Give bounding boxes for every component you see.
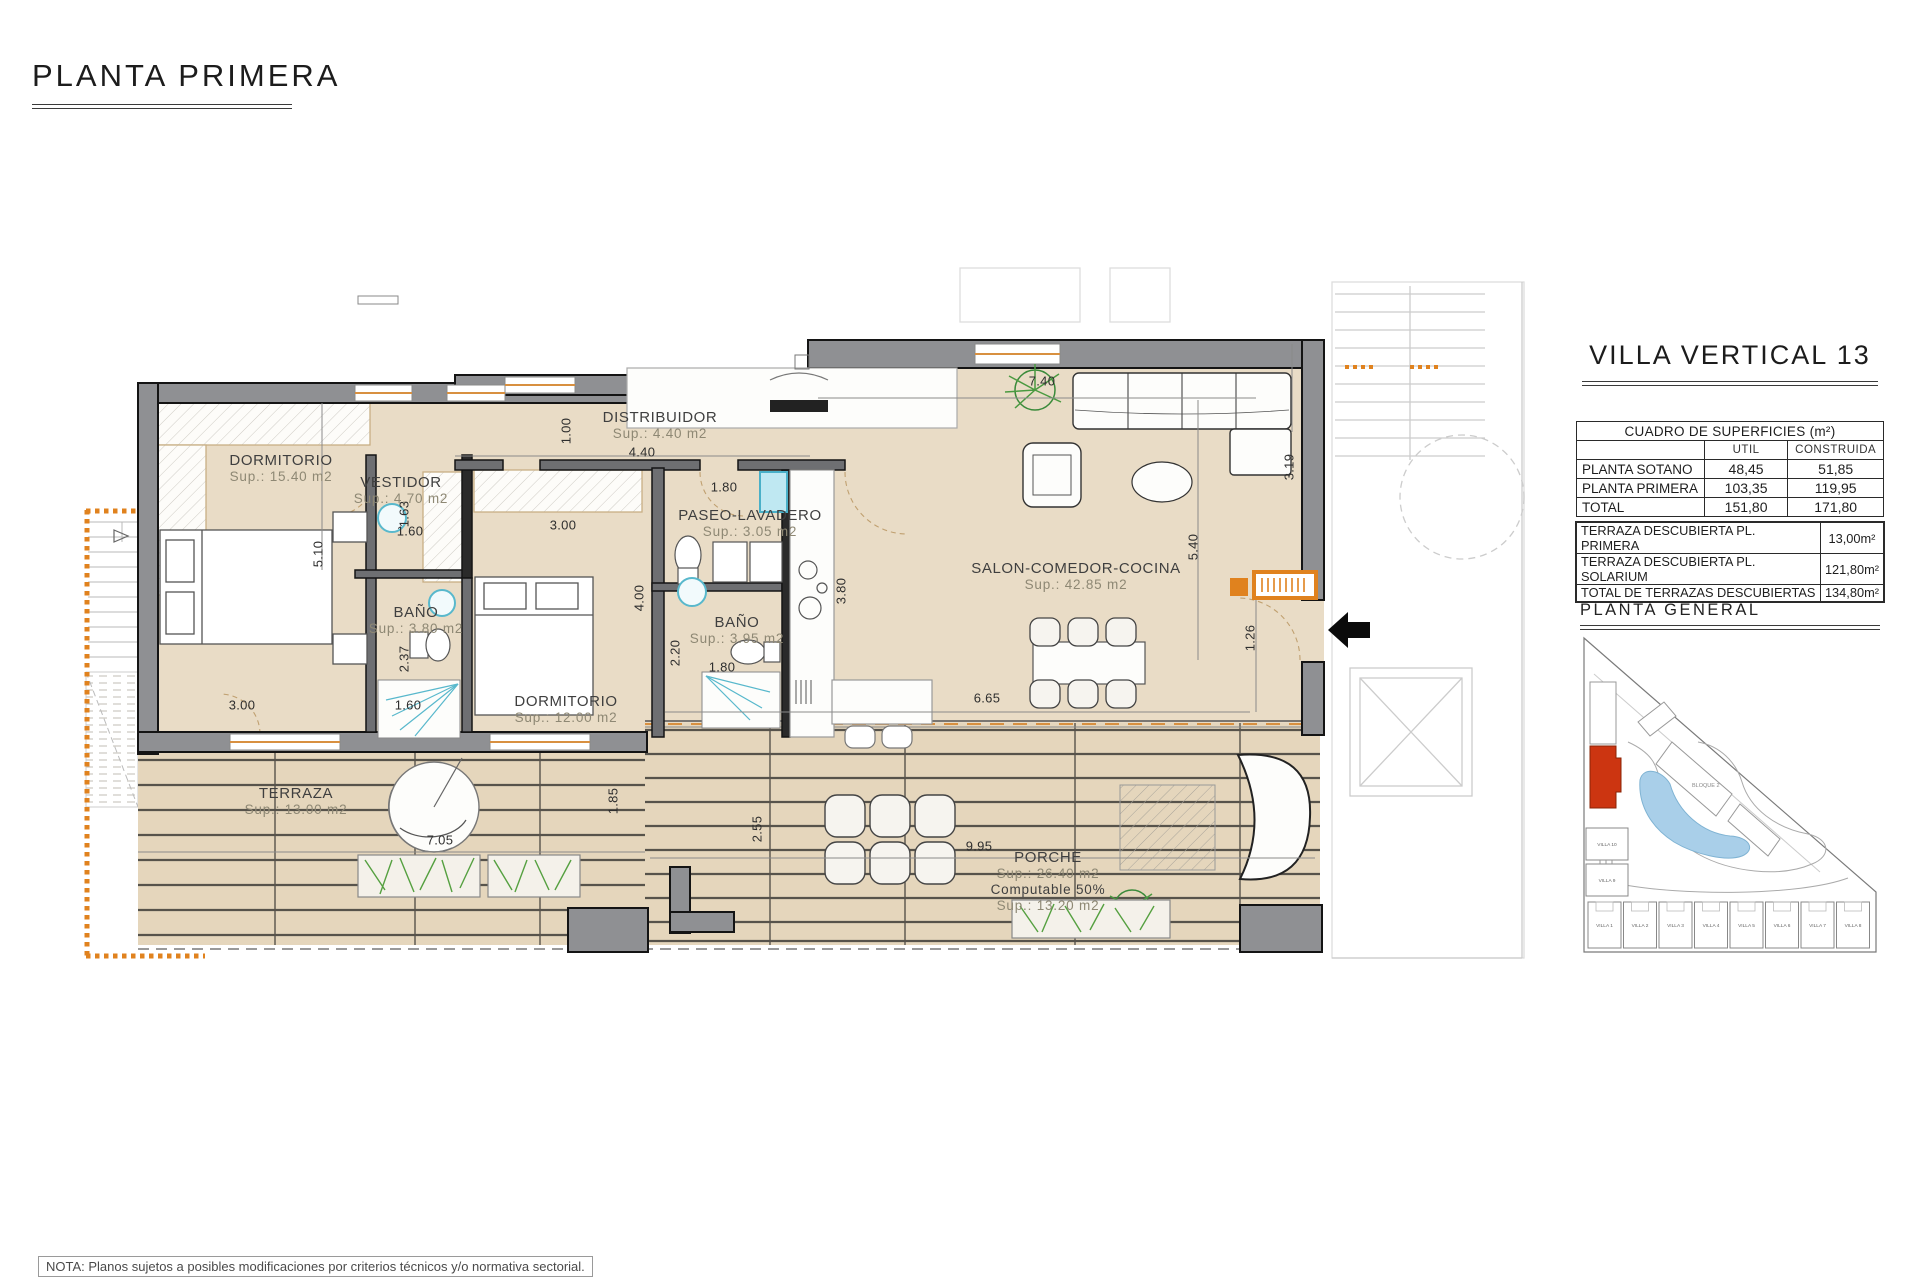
surface-table: CUADRO DE SUPERFICIES (m²) UTIL CONSTRUI…: [1576, 421, 1884, 517]
page-title: PLANTA PRIMERA: [32, 58, 340, 94]
villa-title: VILLA VERTICAL 13: [1576, 340, 1884, 371]
room-label-bano-1: BAÑO Sup.: 3.80 m2: [369, 604, 463, 637]
surface-table-title: CUADRO DE SUPERFICIES (m²): [1577, 422, 1884, 441]
svg-text:VILLA 4: VILLA 4: [1703, 923, 1720, 929]
column-header-util: UTIL: [1704, 441, 1788, 460]
room-label-porche: PORCHE Sup.: 26.40 m2 Computable 50% Sup…: [991, 849, 1106, 914]
terrace-table: TERRAZA DESCUBIERTA PL. PRIMERA 13,00m² …: [1576, 522, 1884, 602]
room-label-dormitorio-1: DORMITORIO Sup.: 15.40 m2: [229, 452, 332, 485]
room-label-terraza: TERRAZA Sup.: 13.00 m2: [245, 785, 348, 818]
table-row: TERRAZA DESCUBIERTA PL. PRIMERA 13,00m²: [1577, 523, 1884, 554]
column-header-construida: CONSTRUIDA: [1788, 441, 1884, 460]
room-label-vestidor: VESTIDOR Sup.: 4.70 m2: [354, 474, 448, 507]
page-title-underline: [32, 104, 292, 109]
tv-unit: [770, 400, 828, 412]
dimension-label: 1.80: [711, 480, 738, 495]
room-label-paseo-lavadero: PASEO-LAVADERO Sup.: 3.05 m2: [678, 507, 821, 540]
table-row: TOTAL DE TERRAZAS DESCUBIERTAS 134,80m²: [1577, 585, 1884, 602]
site-building-outline: [1590, 682, 1616, 744]
room-label-bano-2: BAÑO Sup.: 3.95 m2: [690, 614, 784, 647]
dimension-label: 2.20: [668, 640, 683, 667]
svg-text:VILLA 5: VILLA 5: [1738, 923, 1755, 929]
dimension-label: 4.40: [629, 445, 656, 460]
floor-plan-drawing: [70, 260, 1570, 970]
dimension-label: 3.00: [229, 698, 256, 713]
svg-text:VILLA 3: VILLA 3: [1667, 923, 1684, 929]
footer-note: NOTA: Planos sujetos a posibles modifica…: [38, 1256, 593, 1277]
table-row: TOTAL 151,80 171,80: [1577, 498, 1884, 517]
room-label-salon: SALON-COMEDOR-COCINA Sup.: 42.85 m2: [971, 560, 1181, 593]
dimension-label: 1.60: [397, 524, 424, 539]
dimension-label: 1.26: [1243, 625, 1258, 652]
table-row: PLANTA PRIMERA 103,35 119,95: [1577, 479, 1884, 498]
svg-text:VILLA 6: VILLA 6: [1774, 923, 1791, 929]
dimension-label: 7.05: [427, 833, 454, 848]
dimension-label: 3.19: [1282, 454, 1297, 481]
site-plan-title: PLANTA GENERAL: [1580, 601, 1761, 620]
dimension-label: 3.00: [550, 518, 577, 533]
dimension-label: 5.10: [311, 541, 326, 568]
svg-text:VILLA 7: VILLA 7: [1809, 923, 1826, 929]
dimension-label: 7.40: [1029, 374, 1056, 389]
site-highlighted-villa: [1590, 746, 1621, 808]
dimension-label: 6.65: [974, 691, 1001, 706]
svg-text:VILLA 10: VILLA 10: [1597, 842, 1617, 848]
room-label-dormitorio-2: DORMITORIO Sup.: 12.00 m2: [514, 693, 617, 726]
dimension-label: 3.80: [834, 578, 849, 605]
svg-text:VILLA 8: VILLA 8: [1845, 923, 1862, 929]
svg-text:VILLA 1: VILLA 1: [1596, 923, 1613, 929]
dimension-label: 2.55: [750, 816, 765, 843]
room-label-distribuidor: DISTRIBUIDOR Sup.: 4.40 m2: [603, 409, 718, 442]
villa-title-underline: [1582, 381, 1878, 386]
site-plan-drawing: BLOQUE 2 VILLA 10 VILLA 9 VILLA 1 VILLA …: [1580, 634, 1910, 964]
dimension-label: 1.80: [709, 660, 736, 675]
table-row: TERRAZA DESCUBIERTA PL. SOLARIUM 121,80m…: [1577, 554, 1884, 585]
dimension-label: 4.00: [632, 585, 647, 612]
entrance-arrow-icon: [1328, 612, 1370, 648]
dimension-label: 1.00: [559, 418, 574, 445]
dimension-label: 5.40: [1186, 534, 1201, 561]
site-bloque-label: BLOQUE 2: [1692, 783, 1720, 789]
site-plan-underline: [1580, 625, 1880, 630]
dimension-label: 1.60: [395, 698, 422, 713]
table-row: PLANTA SOTANO 48,45 51,85: [1577, 460, 1884, 479]
dimension-label: 9.95: [966, 839, 993, 854]
svg-text:VILLA 2: VILLA 2: [1632, 923, 1649, 929]
svg-text:VILLA 9: VILLA 9: [1599, 878, 1616, 884]
stair-direction-arrow: [114, 530, 128, 542]
outdoor-rug: [1120, 785, 1215, 870]
dimension-label: 1.85: [606, 788, 621, 815]
dimension-label: 2.37: [397, 646, 412, 673]
